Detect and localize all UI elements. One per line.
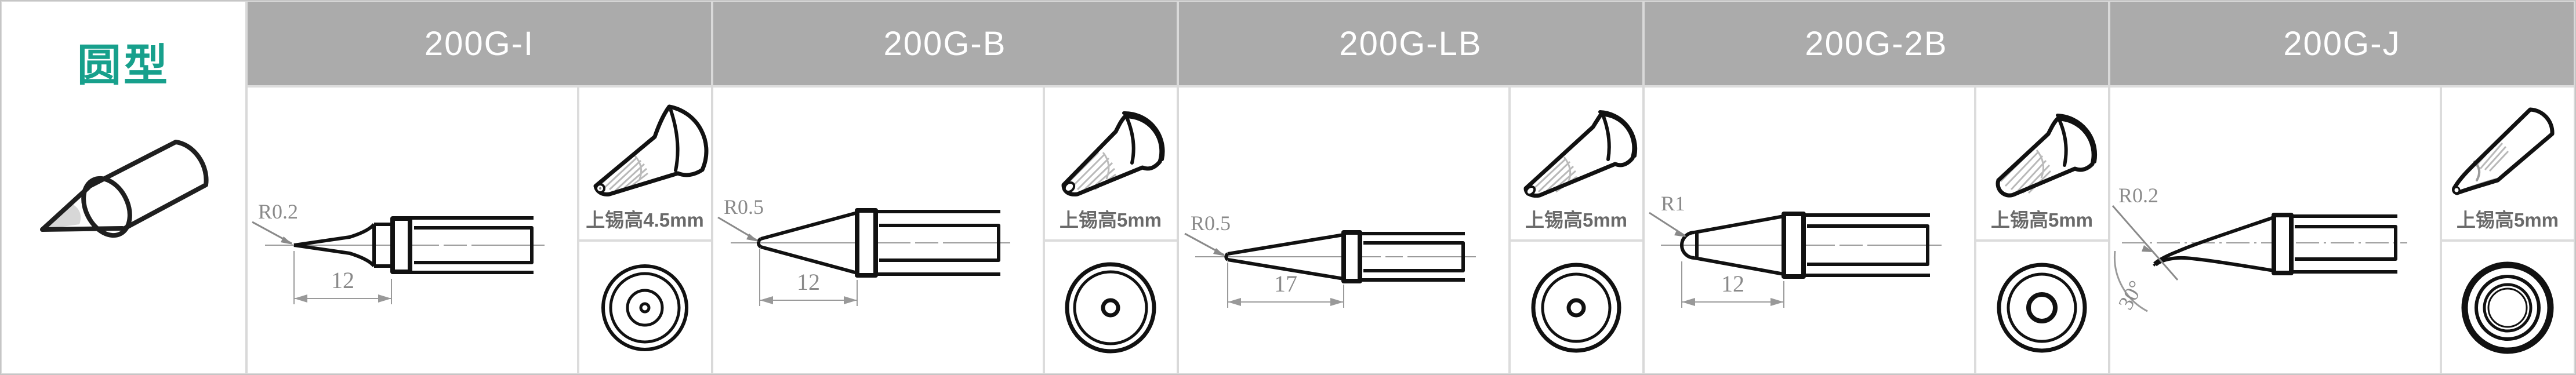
radius-annotation: R1 <box>1661 192 1685 215</box>
tip-end-view <box>1045 242 1177 373</box>
column-header: 200G-2B <box>1645 2 2108 85</box>
tip-3d-view: 上锡高5mm <box>2442 88 2574 239</box>
length-dimension: 12 <box>1721 271 1744 297</box>
column-header: 200G-B <box>713 2 1177 85</box>
model-name: 200G-2B <box>1805 24 1947 63</box>
main-drawing-cell: R0.5 12 <box>713 88 1043 373</box>
product-column-200g-lb: 200G-LB R0.5 17 <box>1179 2 1642 373</box>
tip-side-drawing: R0.2 12 <box>248 88 577 373</box>
tip-3d-view: 上锡高4.5mm <box>579 88 711 239</box>
column-header: 200G-LB <box>1179 2 1642 85</box>
tip-side-drawing: R0.5 17 <box>1179 88 1508 373</box>
category-title: 圆型 <box>2 30 245 93</box>
model-name: 200G-LB <box>1339 24 1482 63</box>
main-drawing-cell: R1 12 <box>1645 88 1974 373</box>
tip-end-view <box>579 242 711 373</box>
tin-view-cell: 上锡高4.5mm <box>579 88 711 239</box>
model-name: 200G-B <box>884 24 1007 63</box>
product-column-200g-j: 200G-J R0.2 30° <box>2110 2 2574 373</box>
round-tip-illustration <box>2 118 245 361</box>
product-column-200g-i: 200G-I R0.2 12 <box>248 2 711 373</box>
tin-view-cell: 上锡高5mm <box>2442 88 2574 239</box>
tip-side-drawing: R1 12 <box>1645 88 1974 373</box>
tin-view-cell: 上锡高5mm <box>1511 88 1642 239</box>
tip-3d-view: 上锡高5mm <box>1511 88 1642 239</box>
end-view-cell <box>2442 242 2574 373</box>
end-view-cell <box>579 242 711 373</box>
product-column-200g-2b: 200G-2B R1 12 <box>1645 2 2108 373</box>
end-view-cell <box>1976 242 2108 373</box>
tin-view-cell: 上锡高5mm <box>1045 88 1177 239</box>
main-drawing-cell: R0.2 12 <box>248 88 577 373</box>
tip-side-drawing: R0.5 12 <box>713 88 1043 373</box>
column-header: 200G-J <box>2110 2 2574 85</box>
tin-height-label: 上锡高5mm <box>2457 209 2559 231</box>
length-dimension: 12 <box>331 267 354 293</box>
tip-end-view <box>1511 242 1642 373</box>
column-header: 200G-I <box>248 2 711 85</box>
end-view-cell <box>1511 242 1642 373</box>
radius-annotation: R0.5 <box>1191 212 1231 235</box>
tip-3d-view: 上锡高5mm <box>1976 88 2108 239</box>
product-column-200g-b: 200G-B R0.5 12 <box>713 2 1177 373</box>
tin-height-label: 上锡高4.5mm <box>586 209 704 231</box>
model-name: 200G-J <box>2283 24 2400 63</box>
length-dimension: 12 <box>797 269 820 295</box>
radius-annotation: R0.5 <box>724 195 764 219</box>
tin-height-label: 上锡高5mm <box>1525 209 1627 231</box>
tip-end-view <box>2442 242 2574 373</box>
main-drawing-cell: R0.2 30° <box>2110 88 2440 373</box>
tip-end-view <box>1976 242 2108 373</box>
radius-annotation: R0.2 <box>2118 184 2158 207</box>
length-dimension: 17 <box>1274 271 1297 297</box>
model-name: 200G-I <box>425 24 534 63</box>
end-view-cell <box>1045 242 1177 373</box>
tin-view-cell: 上锡高5mm <box>1976 88 2108 239</box>
radius-annotation: R0.2 <box>258 200 298 223</box>
category-panel: 圆型 <box>2 2 245 373</box>
tip-3d-view: 上锡高5mm <box>1045 88 1177 239</box>
tin-height-label: 上锡高5mm <box>1060 209 1162 231</box>
main-drawing-cell: R0.5 17 <box>1179 88 1508 373</box>
tip-side-drawing: R0.2 30° <box>2110 88 2440 373</box>
tin-height-label: 上锡高5mm <box>1991 209 2093 231</box>
